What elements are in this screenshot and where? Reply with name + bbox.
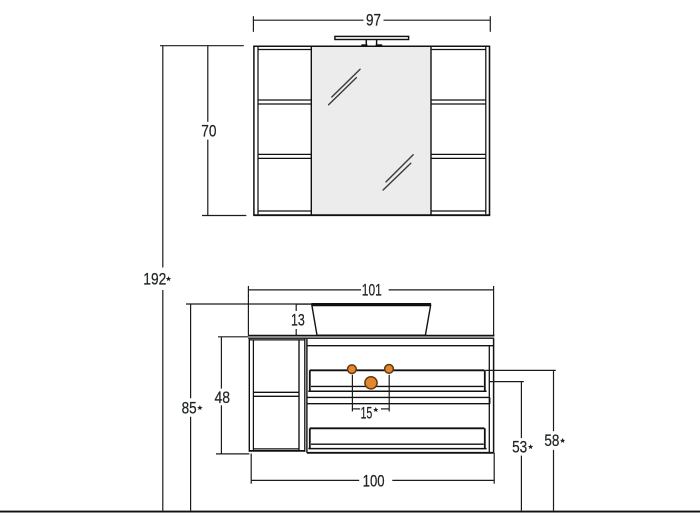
svg-text:101: 101 [362, 280, 382, 299]
svg-text:13: 13 [291, 310, 305, 329]
svg-text:100: 100 [363, 472, 385, 491]
svg-text:70: 70 [201, 122, 216, 141]
svg-text:15: 15 [361, 403, 373, 422]
svg-text:85: 85 [182, 399, 197, 418]
svg-text:97: 97 [366, 11, 381, 30]
svg-text:48: 48 [215, 388, 231, 407]
svg-text:192: 192 [143, 270, 166, 289]
svg-text:53: 53 [512, 437, 527, 456]
svg-text:58: 58 [544, 431, 559, 450]
